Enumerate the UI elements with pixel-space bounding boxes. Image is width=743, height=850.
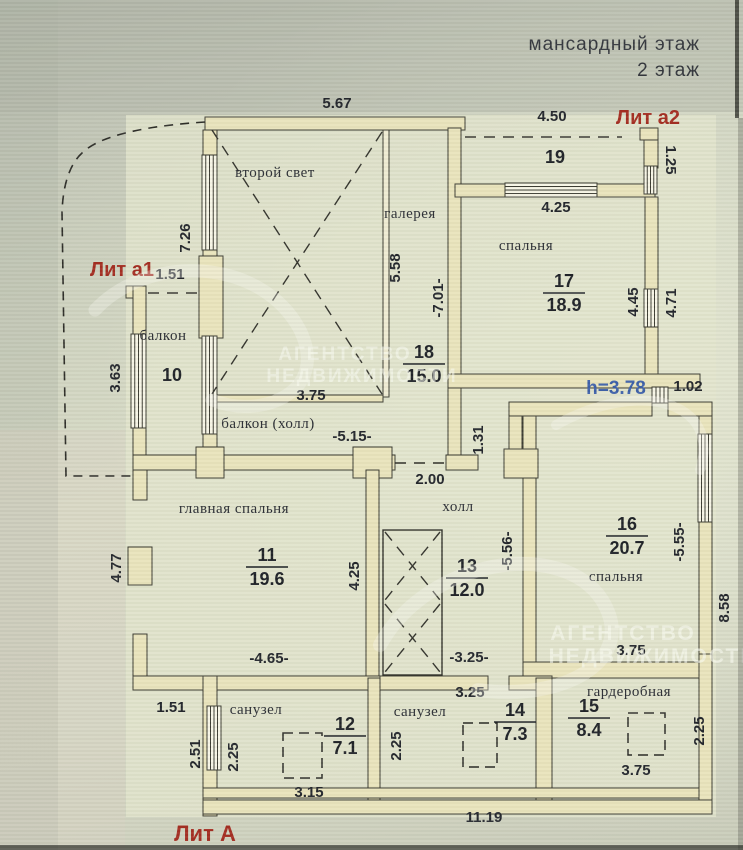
room-name-label: гардеробная	[587, 684, 671, 700]
dimension-label: 2.25	[388, 731, 405, 760]
wall-segment	[448, 374, 700, 388]
room-number: 18	[414, 342, 434, 362]
scan-shadow-right	[738, 118, 743, 850]
room-name-label: санузел	[230, 702, 283, 718]
room-number: 16	[617, 514, 637, 534]
wall-segment	[205, 117, 465, 130]
room-area: 20.7	[609, 538, 644, 558]
room-name-label: главная спальня	[179, 501, 289, 517]
room-number: 14	[505, 700, 525, 720]
dimension-label: 4.77	[108, 553, 125, 582]
wall-segment	[133, 676, 395, 690]
dimension-label: -4.65-	[249, 650, 288, 667]
room-name-label: галерея	[384, 206, 436, 222]
dimension-label: 5.58	[387, 253, 404, 282]
dimension-label: 4.71	[663, 288, 680, 317]
room-name-label: спальня	[589, 569, 643, 585]
wall-segment	[446, 455, 478, 470]
room-name-label: холл	[442, 499, 473, 515]
dimension-label: -3.25-	[449, 649, 488, 666]
wall-segment	[128, 547, 152, 585]
dimension-label: 7.26	[177, 223, 194, 252]
paper-shade-pink	[0, 430, 125, 850]
floor-title-line2: 2 этаж	[637, 60, 700, 81]
dimension-label: 1.25	[662, 145, 679, 174]
dimension-label: 3.63	[107, 363, 124, 392]
wall-segment	[196, 447, 224, 478]
room-name-label: спальня	[499, 238, 553, 254]
room-number: 12	[335, 714, 355, 734]
dimension-label: -5.15-	[332, 428, 371, 445]
dimension-label: -5.55-	[671, 522, 688, 561]
dimension-label: 8.58	[716, 593, 733, 622]
dimension-label: 4.25	[541, 199, 570, 216]
paper-shade-top	[0, 0, 743, 112]
dimension-label: 2.25	[691, 716, 708, 745]
dimension-label: 1.31	[470, 425, 487, 454]
dimension-label: 2.51	[187, 739, 204, 768]
wall-segment	[640, 128, 658, 140]
dimension-label: 4.45	[625, 287, 642, 316]
room-number: 11	[257, 545, 276, 565]
dimension-label: 3.75	[621, 762, 650, 779]
wall-segment	[203, 788, 712, 798]
dimension-label: 11.19	[466, 809, 503, 826]
room-name-label: балкон	[140, 328, 187, 344]
floor-title-line1: мансардный этаж	[529, 34, 701, 55]
scanned-floor-plan-page: мансардный этаж 2 этаж Лит а2 Лит а1 Лит…	[0, 0, 743, 850]
lit-a-mark: Лит А	[174, 821, 236, 846]
room-name-label: санузел	[394, 704, 447, 720]
wall-segment	[504, 449, 538, 478]
dimension-label: 2.00	[415, 471, 444, 488]
room-area: 8.4	[576, 720, 601, 740]
wall-segment	[644, 140, 658, 168]
watermark-agency-line1: АГЕНТСТВО	[278, 344, 411, 365]
wall-segment	[645, 197, 658, 289]
lit-a2-mark: Лит а2	[616, 107, 680, 129]
scan-edge-right	[735, 0, 739, 118]
room-area: 18.9	[546, 295, 581, 315]
floor-plan-drawing: мансардный этаж 2 этаж Лит а2 Лит а1 Лит…	[0, 0, 743, 850]
room-number: 17	[554, 271, 574, 291]
watermark-agency-line2: НЕДВИЖИМОСТИ	[266, 366, 457, 387]
wall-segment	[368, 678, 380, 800]
room-area: 7.3	[502, 724, 527, 744]
wall-segment	[203, 800, 712, 814]
wall-segment	[133, 470, 147, 500]
dimension-label: -7.01-	[430, 278, 447, 317]
dimension-label: 4.50	[537, 108, 566, 125]
watermark-agency-line1: АГЕНТСТВО	[550, 622, 696, 645]
scan-edge-bottom	[0, 845, 743, 850]
dimension-label: 1.02	[673, 378, 702, 395]
room-name-label: балкон (холл)	[221, 416, 314, 432]
wall-segment	[448, 128, 461, 374]
dimension-label: 2.25	[225, 742, 242, 771]
room-name-label: второй свет	[235, 165, 315, 181]
dimension-label: 4.25	[346, 561, 363, 590]
room-number: 15	[579, 696, 599, 716]
dimension-label: 3.15	[294, 784, 323, 801]
room-number: 19	[545, 147, 565, 167]
dimension-label: 1.51	[156, 699, 185, 716]
wall-segment	[645, 327, 658, 374]
wall-segment	[699, 522, 712, 654]
room-number: 10	[162, 365, 182, 385]
room-area: 7.1	[332, 738, 357, 758]
watermark-agency-line2: НЕДВИЖИМОСТИ	[549, 645, 743, 668]
wall-segment	[133, 634, 147, 680]
room-area: 19.6	[249, 569, 284, 589]
dimension-label: 5.67	[322, 95, 351, 112]
